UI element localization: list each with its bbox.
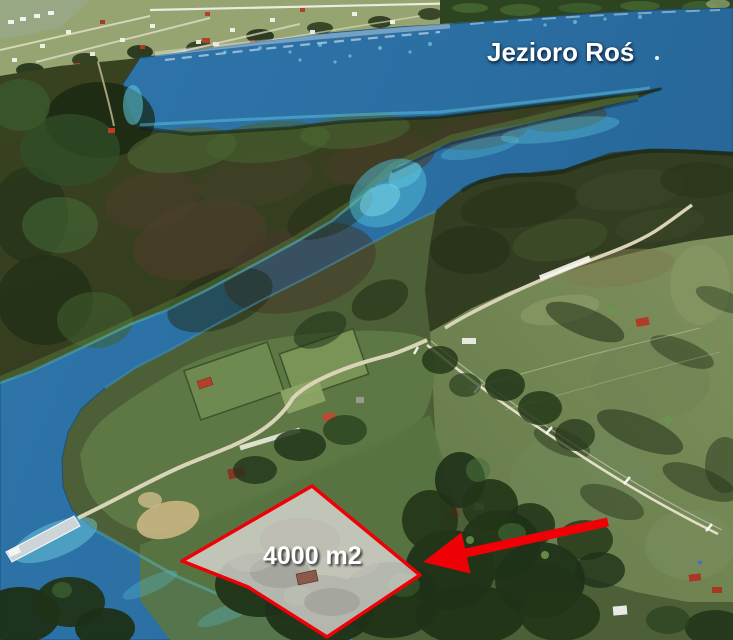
lake-name-label: Jezioro Roś (487, 39, 634, 65)
terrain-canvas (0, 0, 733, 640)
plot-area-label: 4000 m2 (263, 544, 362, 569)
aerial-photo: Jezioro Roś 4000 m2 (0, 0, 733, 640)
